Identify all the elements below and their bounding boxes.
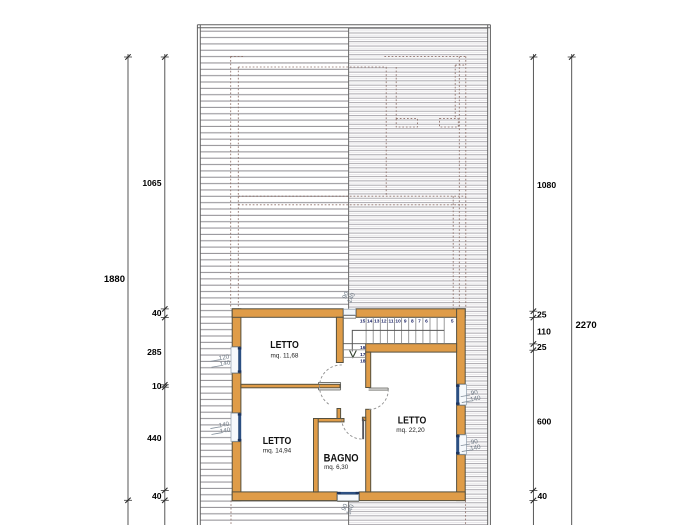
svg-text:9: 9: [404, 319, 407, 325]
svg-text:6: 6: [425, 319, 428, 325]
svg-text:40: 40: [152, 491, 162, 501]
svg-text:7: 7: [418, 319, 421, 325]
svg-text:LETTO: LETTO: [398, 416, 427, 427]
svg-text:600: 600: [537, 417, 552, 427]
svg-text:17: 17: [360, 352, 366, 358]
svg-text:1080: 1080: [537, 180, 556, 190]
svg-text:11: 11: [388, 319, 393, 325]
svg-text:18: 18: [360, 359, 366, 365]
svg-text:25: 25: [537, 309, 547, 319]
svg-text:110: 110: [537, 326, 551, 336]
svg-text:8: 8: [411, 319, 414, 325]
svg-text:BAGNO: BAGNO: [324, 453, 359, 465]
svg-text:285: 285: [147, 347, 162, 357]
svg-text:40: 40: [152, 308, 162, 318]
svg-text:10: 10: [395, 319, 401, 325]
svg-text:16: 16: [360, 345, 366, 351]
svg-text:15: 15: [360, 319, 366, 325]
svg-text:mq. 11,68: mq. 11,68: [271, 352, 299, 359]
svg-text:2270: 2270: [576, 320, 597, 331]
svg-text:12: 12: [381, 319, 387, 325]
svg-text:1880: 1880: [104, 274, 125, 285]
svg-text:1065: 1065: [142, 178, 161, 188]
svg-text:LETTO: LETTO: [263, 436, 292, 447]
svg-text:440: 440: [147, 433, 162, 443]
svg-text:5: 5: [451, 319, 454, 325]
svg-text:mq. 6,30: mq. 6,30: [324, 464, 349, 471]
svg-text:40: 40: [538, 491, 548, 501]
svg-text:13: 13: [374, 319, 380, 325]
svg-text:LETTO: LETTO: [270, 340, 299, 351]
svg-text:mq. 22,20: mq. 22,20: [396, 427, 425, 434]
svg-text:14: 14: [367, 319, 373, 325]
svg-text:mq. 14,94: mq. 14,94: [263, 447, 292, 454]
svg-text:25: 25: [537, 342, 547, 352]
svg-text:10: 10: [152, 381, 162, 391]
